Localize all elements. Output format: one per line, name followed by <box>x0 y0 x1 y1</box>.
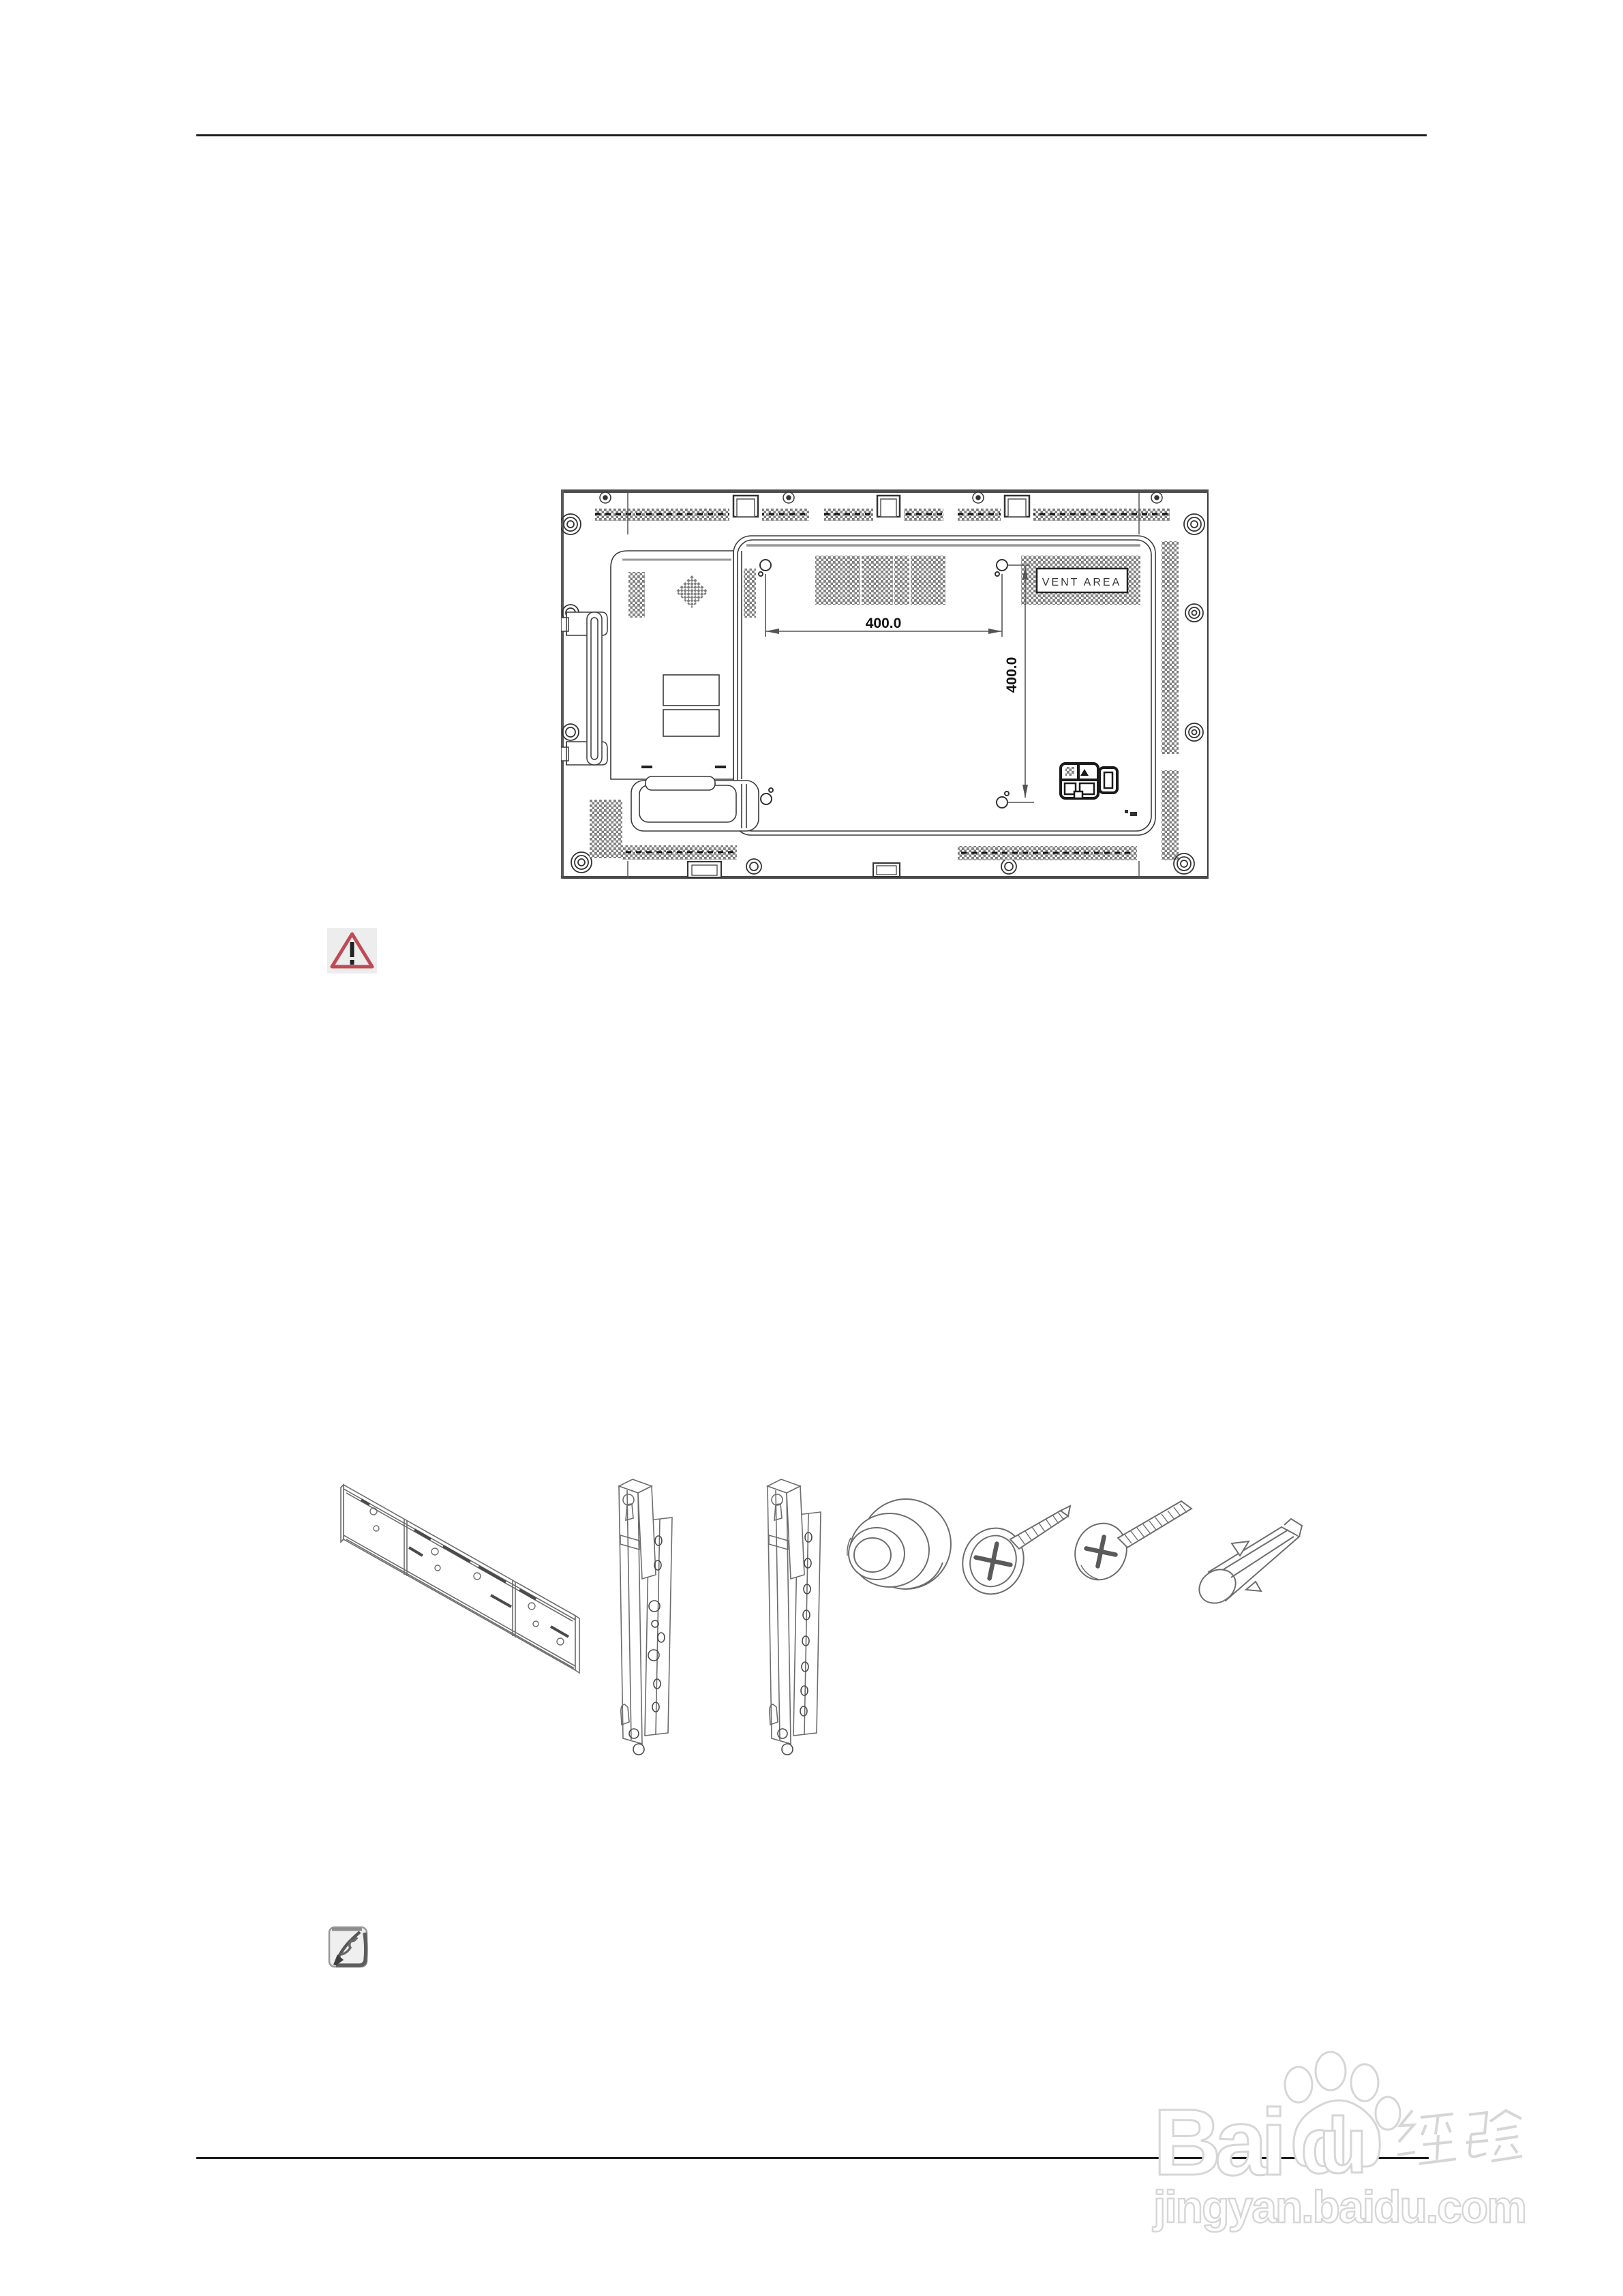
svg-text:Bai: Bai <box>1153 2090 1287 2195</box>
svg-text:VENT AREA: VENT AREA <box>1042 577 1122 588</box>
svg-text:400.0: 400.0 <box>1004 657 1020 693</box>
svg-text:jingyan.baidu.com: jingyan.baidu.com <box>1152 2181 1527 2232</box>
svg-text:400.0: 400.0 <box>866 616 902 631</box>
svg-text:du: du <box>1301 2101 1367 2190</box>
